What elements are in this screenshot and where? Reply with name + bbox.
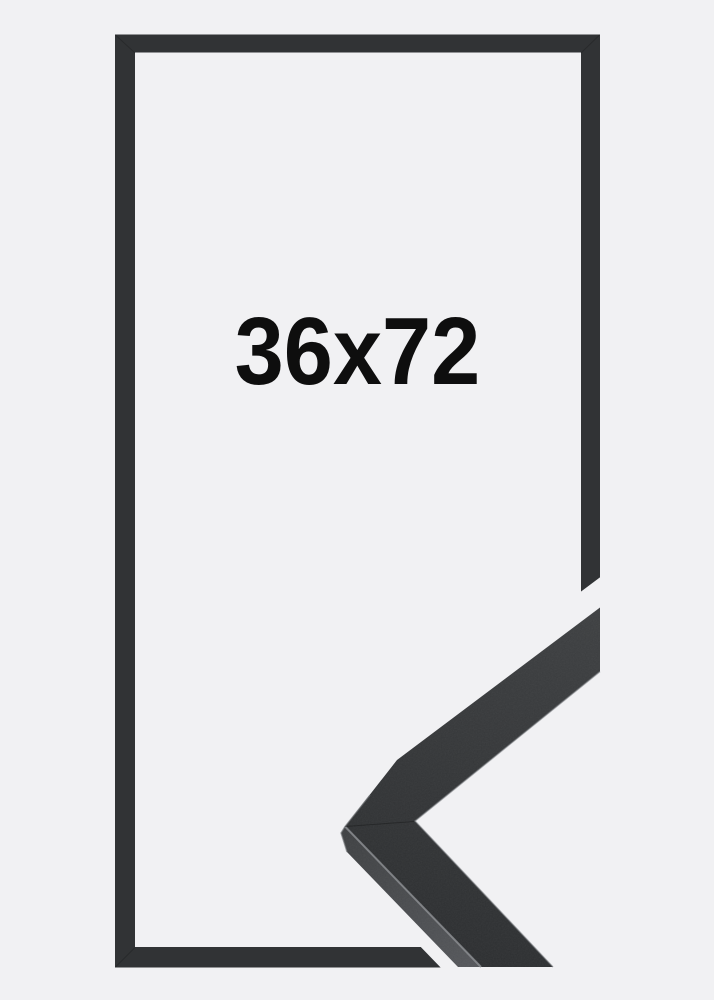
frame-product-image: 36x72 <box>0 0 714 1000</box>
size-label: 36x72 <box>0 304 714 400</box>
size-label-text: 36x72 <box>234 304 480 400</box>
frame-graphic <box>0 0 714 1000</box>
